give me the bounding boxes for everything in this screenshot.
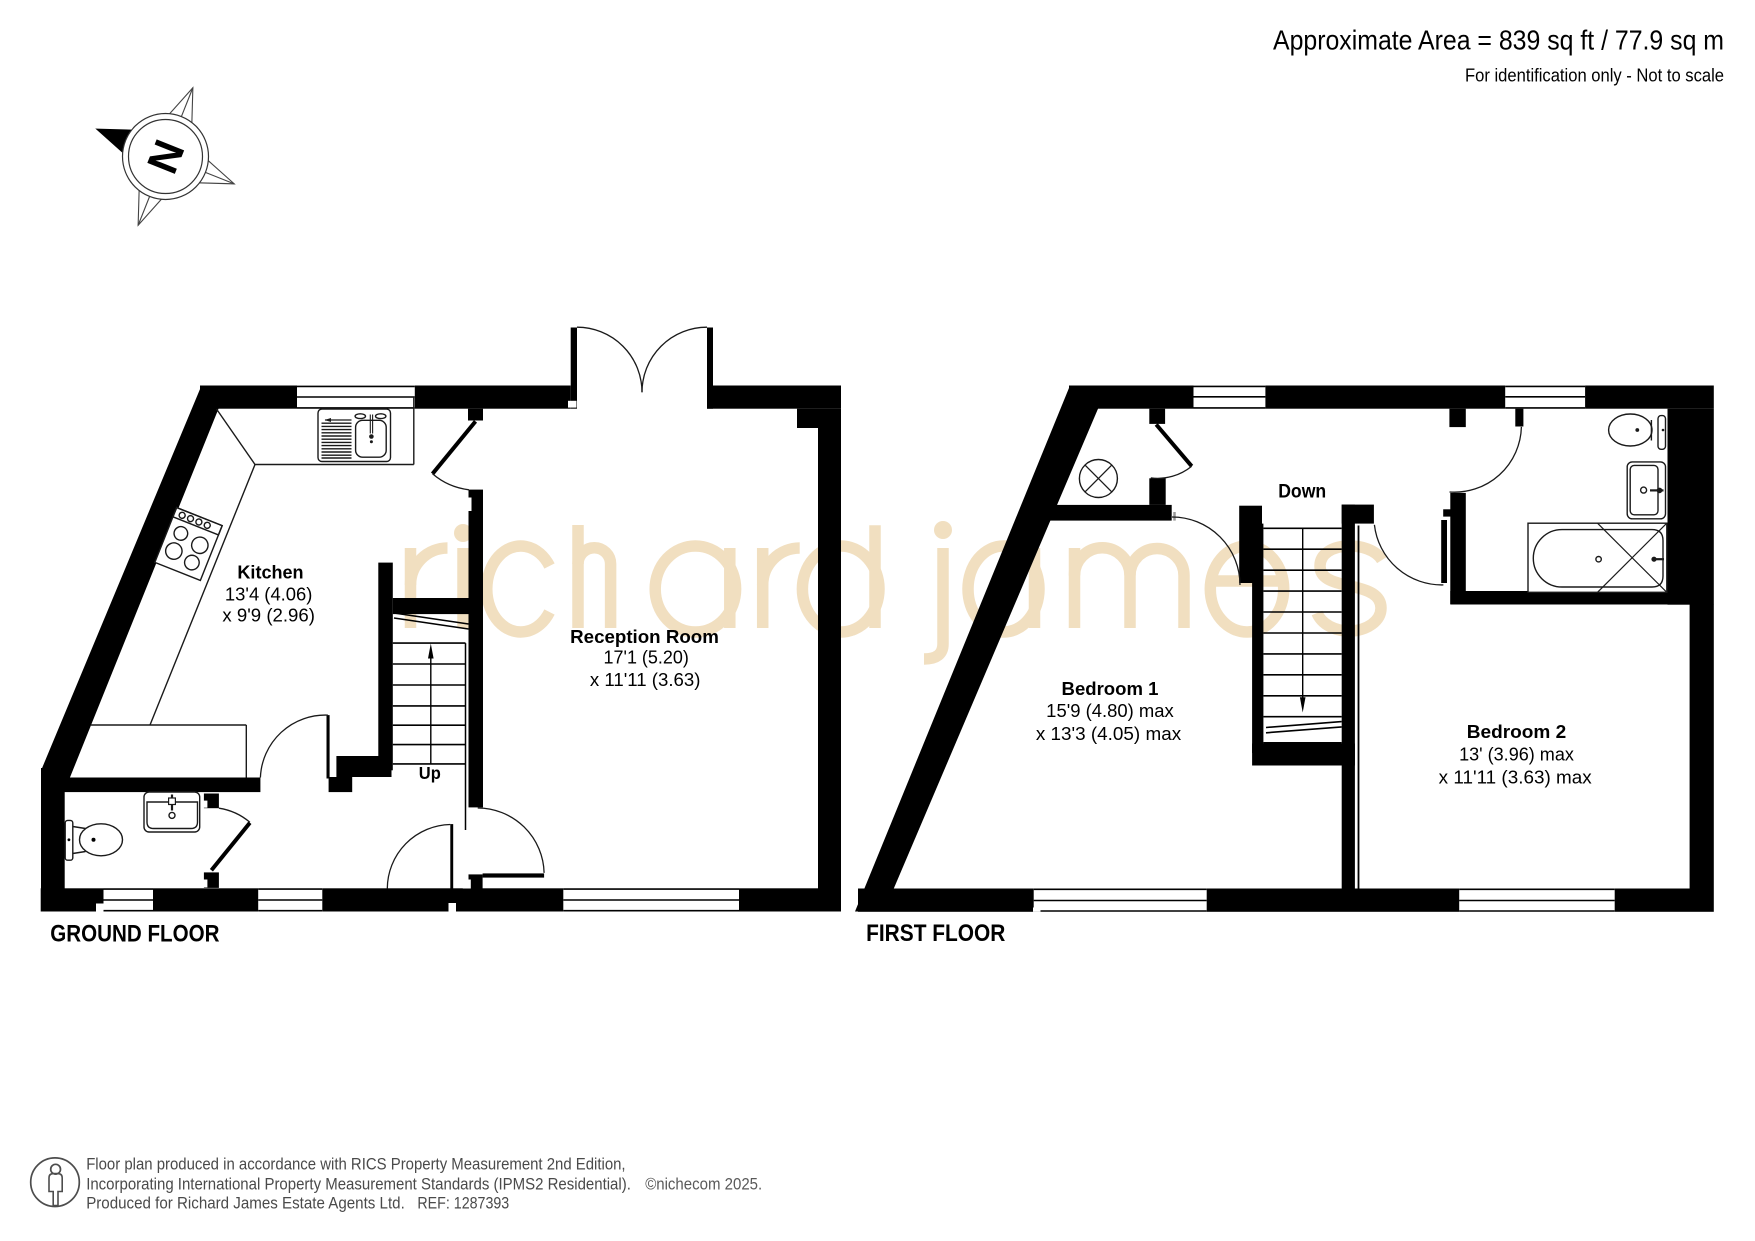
svg-text:Kitchen: Kitchen xyxy=(237,562,303,583)
svg-text:Floor plan produced in accorda: Floor plan produced in accordance with R… xyxy=(86,1155,625,1173)
svg-text:GROUND FLOOR: GROUND FLOOR xyxy=(50,921,219,948)
svg-text:x 11'11 (3.63) max: x 11'11 (3.63) max xyxy=(1439,768,1592,788)
svg-text:x 13'3 (4.05) max: x 13'3 (4.05) max xyxy=(1036,724,1181,744)
svg-text:FIRST FLOOR: FIRST FLOOR xyxy=(866,920,1005,947)
svg-text:x 9'9 (2.96): x 9'9 (2.96) xyxy=(222,605,315,625)
svg-text:Bedroom 1: Bedroom 1 xyxy=(1062,678,1159,699)
svg-text:Reception Room: Reception Room xyxy=(570,626,719,647)
svg-text:REF: 1287393: REF: 1287393 xyxy=(417,1194,509,1212)
svg-text:13' (3.96) max: 13' (3.96) max xyxy=(1459,745,1574,765)
svg-text:Approximate Area = 839 sq ft /: Approximate Area = 839 sq ft / 77.9 sq m xyxy=(1273,25,1724,56)
svg-text:Up: Up xyxy=(419,763,441,783)
svg-text:13'4 (4.06): 13'4 (4.06) xyxy=(225,585,313,605)
svg-text:Produced for Richard James Est: Produced for Richard James Estate Agents… xyxy=(86,1194,405,1212)
svg-text:Down: Down xyxy=(1278,480,1326,502)
svg-text:©nichecom 2025.: ©nichecom 2025. xyxy=(645,1176,762,1194)
svg-text:x 11'11 (3.63): x 11'11 (3.63) xyxy=(590,670,701,690)
svg-text:17'1 (5.20): 17'1 (5.20) xyxy=(604,647,689,667)
svg-text:Bedroom 2: Bedroom 2 xyxy=(1467,721,1567,742)
svg-text:For identification only - Not: For identification only - Not to scale xyxy=(1465,66,1724,86)
svg-text:Incorporating International Pr: Incorporating International Property Mea… xyxy=(86,1176,631,1194)
svg-text:15'9 (4.80) max: 15'9 (4.80) max xyxy=(1046,701,1174,721)
